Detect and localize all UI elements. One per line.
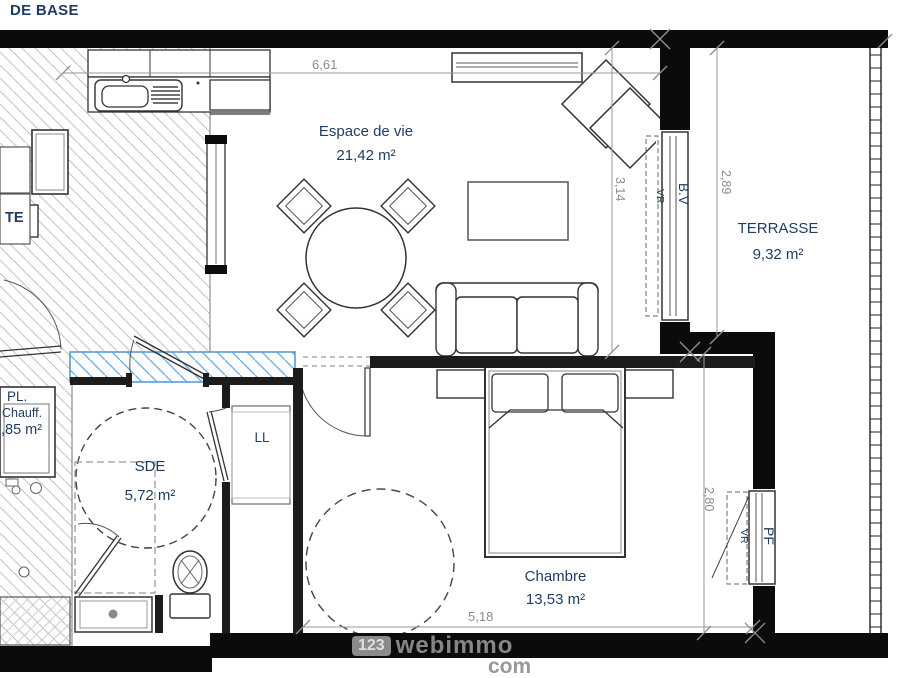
water-heater-label: Chauff.	[2, 407, 42, 421]
pillow	[492, 374, 548, 412]
terrace-label: TERRASSE	[722, 221, 834, 238]
bay-window	[646, 130, 694, 322]
living-room-area: 21,42 m²	[280, 148, 452, 165]
shower-door	[75, 523, 121, 596]
coffee-table	[468, 182, 568, 240]
bay-window-shutter-label: VR	[653, 189, 665, 204]
french-window-label: PF	[761, 527, 776, 545]
bedroom-label: Chambre	[498, 569, 613, 586]
kitchen-pocket-door	[205, 135, 227, 274]
sideboard	[452, 53, 582, 82]
dimension-terrace-depth: 2,89	[719, 170, 733, 194]
dining-table	[306, 208, 406, 308]
nightstand	[437, 370, 485, 398]
wall-terrace-divider-bottom	[660, 320, 690, 354]
vanity-unit	[75, 597, 152, 632]
wall-bottom	[210, 633, 888, 658]
floor-plan-page: DE BASE Espace de vie 21,42 m² TERRASSE …	[0, 0, 902, 678]
turning-circle	[306, 489, 454, 637]
shower-room-label: SDE	[106, 459, 194, 476]
wall-terrace-divider-top	[660, 48, 690, 133]
wall-top	[0, 30, 888, 48]
turning-circle	[76, 408, 216, 548]
closet-label: PL.	[7, 390, 27, 405]
floor-drain	[19, 567, 29, 577]
nightstand	[625, 370, 673, 398]
living-room-label: Espace de vie	[280, 124, 452, 141]
shower-tray	[75, 462, 155, 593]
dining-set	[277, 179, 435, 337]
wall-bedroom-right-bottom	[753, 584, 775, 633]
page-title: DE BASE	[10, 3, 79, 20]
bedroom-furniture	[299, 357, 673, 637]
toilet	[170, 551, 210, 618]
dimension-living-depth: 3,14	[613, 177, 627, 201]
closet-area: ,85 m²	[1, 423, 42, 439]
bedroom-door	[299, 357, 370, 436]
entry-label: TE	[5, 211, 24, 227]
washing-machine-label: LL	[246, 431, 278, 446]
terrace-railing	[870, 48, 881, 633]
dimension-bedroom-depth: 2,80	[702, 487, 716, 511]
wall-terrace-bottom	[688, 332, 775, 354]
washing-machine-box	[232, 406, 290, 504]
wall-bottom-left	[0, 646, 212, 672]
pillow	[562, 374, 618, 412]
watermark-badge: 123	[352, 636, 391, 656]
shower-room-area: 5,72 m²	[106, 488, 194, 505]
french-window-shutter-label: VR	[737, 529, 749, 544]
dimension-living-width: 6,61	[312, 57, 337, 72]
sofa	[436, 283, 598, 356]
side-counter	[0, 597, 70, 645]
kitchen-sink	[95, 76, 182, 112]
terrace-area: 9,32 m²	[722, 247, 834, 264]
double-bed	[485, 367, 625, 557]
watermark-tld: com	[488, 655, 531, 678]
dimension-bedroom-width: 5,18	[468, 609, 493, 624]
bedroom-area: 13,53 m²	[498, 592, 613, 609]
wall-bedroom-right-top	[753, 354, 775, 491]
floor-plan-drawing	[0, 0, 902, 678]
bay-window-label: B.V	[675, 183, 690, 205]
laundry-closet-door	[207, 408, 228, 481]
